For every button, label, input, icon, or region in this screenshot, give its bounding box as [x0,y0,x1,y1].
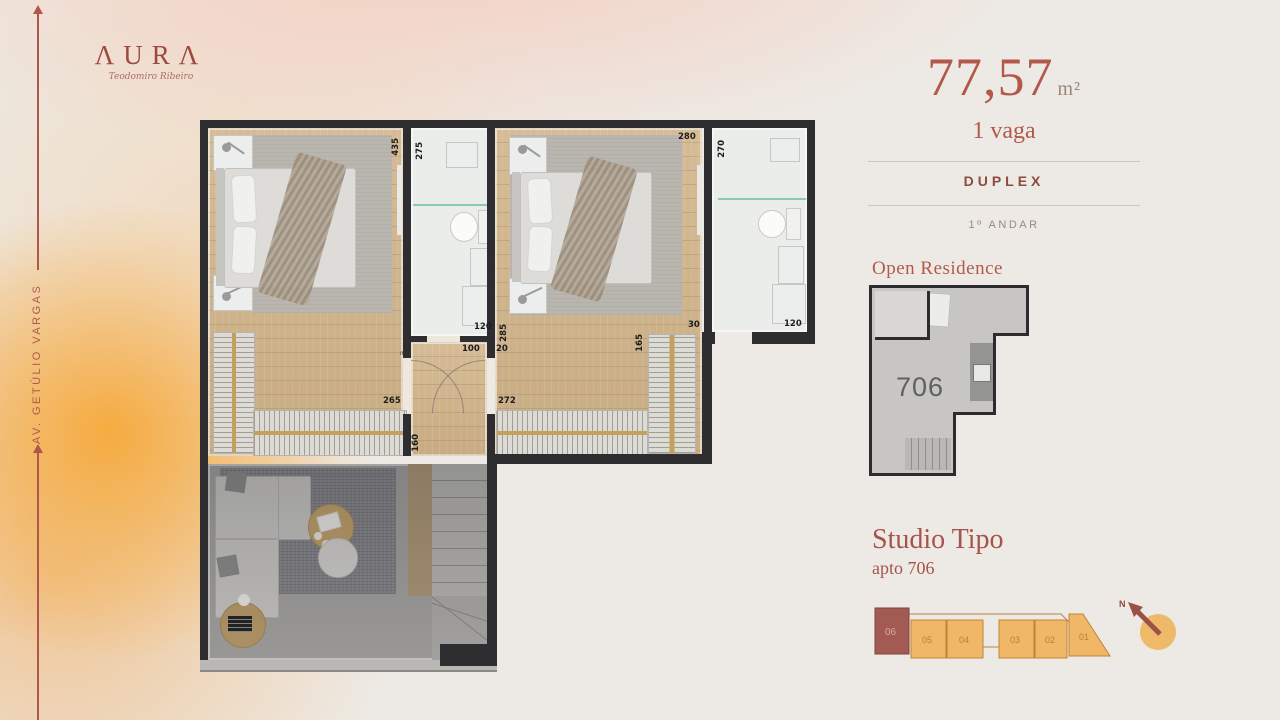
dim-285: 285 [500,324,509,342]
keyplan-label-01: 01 [1079,632,1089,642]
road-line-lower [37,452,39,720]
shower-glass [718,198,806,200]
road-line-upper [37,13,39,270]
road-label: AV. GETÚLIO VARGAS [31,276,43,444]
dim-270: 270 [718,140,727,158]
brand-signature: Teodomiro Ribeiro [76,72,226,82]
compass-north-label: N [1119,599,1126,609]
page: AV. GETÚLIO VARGAS ΛURΛ Teodomiro Ribeir… [0,0,1280,720]
parking-label: 1 vaga [868,118,1140,145]
keyplan-label-04: 04 [959,635,969,645]
divider-bottom [868,205,1140,206]
floor-label: 1º ANDAR [868,219,1140,231]
floor-plan: m m 435 275 280 270 120 100 20 285 30 16… [200,120,815,670]
dim-20: 20 [496,345,508,354]
mini-unit-plan: 706 [872,288,1029,474]
dim-435: 435 [392,138,401,156]
pillow [231,225,257,274]
building-keyplan: 06 05 04 03 02 01 [873,598,1115,662]
mini-fixture [927,292,951,327]
dim-120-bath1: 120 [474,323,492,332]
nightstand [213,135,253,171]
dim-272: 272 [498,397,516,406]
keyplan-unit-01 [1069,614,1110,656]
keyplan-label-05: 05 [922,635,932,645]
mini-unit-number: 706 [896,372,944,403]
shower-fixture [446,142,478,168]
divider-top [868,161,1140,162]
compass: N [1116,594,1180,654]
window [697,165,702,235]
area-unit: m² [1057,78,1081,100]
bed-headboard [512,172,520,282]
brand-logo: ΛURΛ [76,40,226,71]
shower-fixture [770,138,800,162]
info-panel: 77,57m² 1 vaga DUPLEX 1º ANDAR [868,50,1140,231]
dim-100: 100 [462,345,480,354]
dim-30: 30 [688,321,700,330]
shower-glass [413,204,493,206]
bedroom1-wardrobe-horizontal [253,410,407,456]
dim-120-bath2: 120 [784,320,802,329]
door-marker: m [400,351,405,357]
mini-appliance [973,364,991,382]
sink [778,246,804,284]
bedroom2-wardrobe-horizontal [496,410,648,456]
keyplan-label-06: 06 [885,627,897,638]
dim-160: 160 [412,434,421,452]
pillow [527,177,553,224]
mini-stairs [905,438,951,470]
mini-bathroom [875,291,930,340]
door-marker: m [488,351,493,357]
pillow [527,225,553,272]
studio-title: Studio Tipo [872,524,1004,556]
bedroom2-wardrobe-vertical [648,334,696,454]
residence-title: Open Residence [872,258,1003,280]
bedroom1-wardrobe-vertical [213,332,255,454]
bed-headboard [216,168,224,286]
pillow [231,174,257,223]
area-row: 77,57m² [868,50,1140,104]
toilet [758,210,786,238]
bath-cabinet [772,284,806,324]
void-shadow [208,464,487,660]
dim-280: 280 [678,133,696,142]
dim-275: 275 [416,142,425,160]
keyplan-label-03: 03 [1010,635,1020,645]
type-label: DUPLEX [868,173,1140,189]
dim-265: 265 [383,397,401,406]
window [397,165,402,235]
dim-165: 165 [636,334,645,352]
toilet [450,212,478,242]
area-value: 77,57 [927,47,1054,107]
keyplan-label-02: 02 [1045,635,1055,645]
studio-subtitle: apto 706 [872,558,935,579]
nightstand [509,137,547,175]
